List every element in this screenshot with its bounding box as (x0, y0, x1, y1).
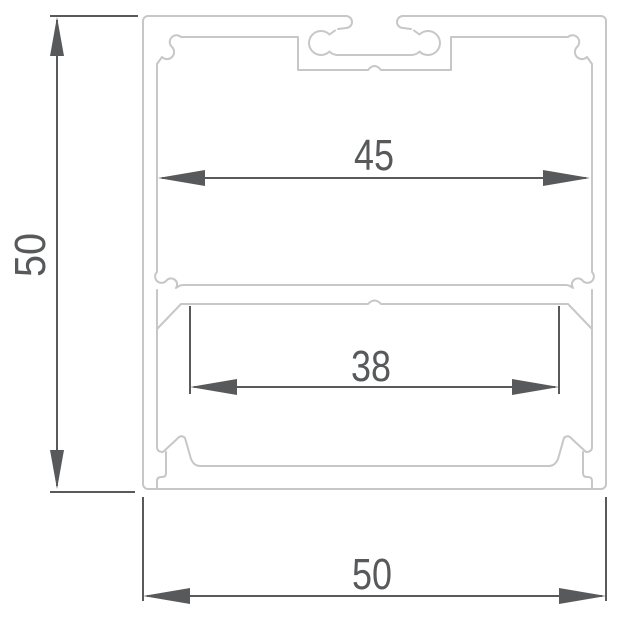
arrow-left-icon (143, 588, 190, 604)
dim-outer-width-value: 50 (352, 550, 392, 599)
profile-cross-section-drawing: 50 45 38 (0, 0, 630, 622)
dimensions: 50 45 38 (6, 16, 606, 604)
arrow-right-icon (543, 170, 590, 186)
drawing-canvas: 50 45 38 (0, 0, 630, 622)
screw-boss-right (412, 31, 440, 56)
pcb-tray (157, 301, 592, 330)
ceiling-and-recess (187, 37, 562, 70)
dim-slot-width-value: 38 (351, 342, 391, 391)
slot-hook-left (338, 16, 352, 29)
screw-port-mid-left (155, 268, 183, 288)
arrow-right-icon (559, 588, 606, 604)
screw-port-top-left (157, 35, 187, 64)
arrow-down-icon (50, 450, 64, 489)
dim-height: 50 (6, 16, 138, 492)
base-groove-left (157, 452, 166, 488)
arrow-left-icon (158, 170, 205, 186)
screw-boss-left (309, 31, 337, 56)
dim-height-value: 50 (6, 233, 55, 277)
profile-outline (143, 16, 606, 489)
dim-inner-width: 45 (158, 131, 590, 186)
base-groove-right (583, 452, 592, 488)
arrow-up-icon (50, 17, 64, 56)
arrow-left-icon (190, 379, 237, 395)
outer-perimeter (143, 16, 606, 489)
screw-port-top-right (562, 35, 592, 64)
screw-port-mid-right (566, 268, 594, 288)
slot-hook-right (397, 16, 411, 29)
dim-slot-width: 38 (190, 306, 559, 395)
dim-inner-width-value: 45 (354, 131, 394, 180)
dim-outer-width: 50 (143, 497, 606, 604)
arrow-right-icon (512, 379, 559, 395)
